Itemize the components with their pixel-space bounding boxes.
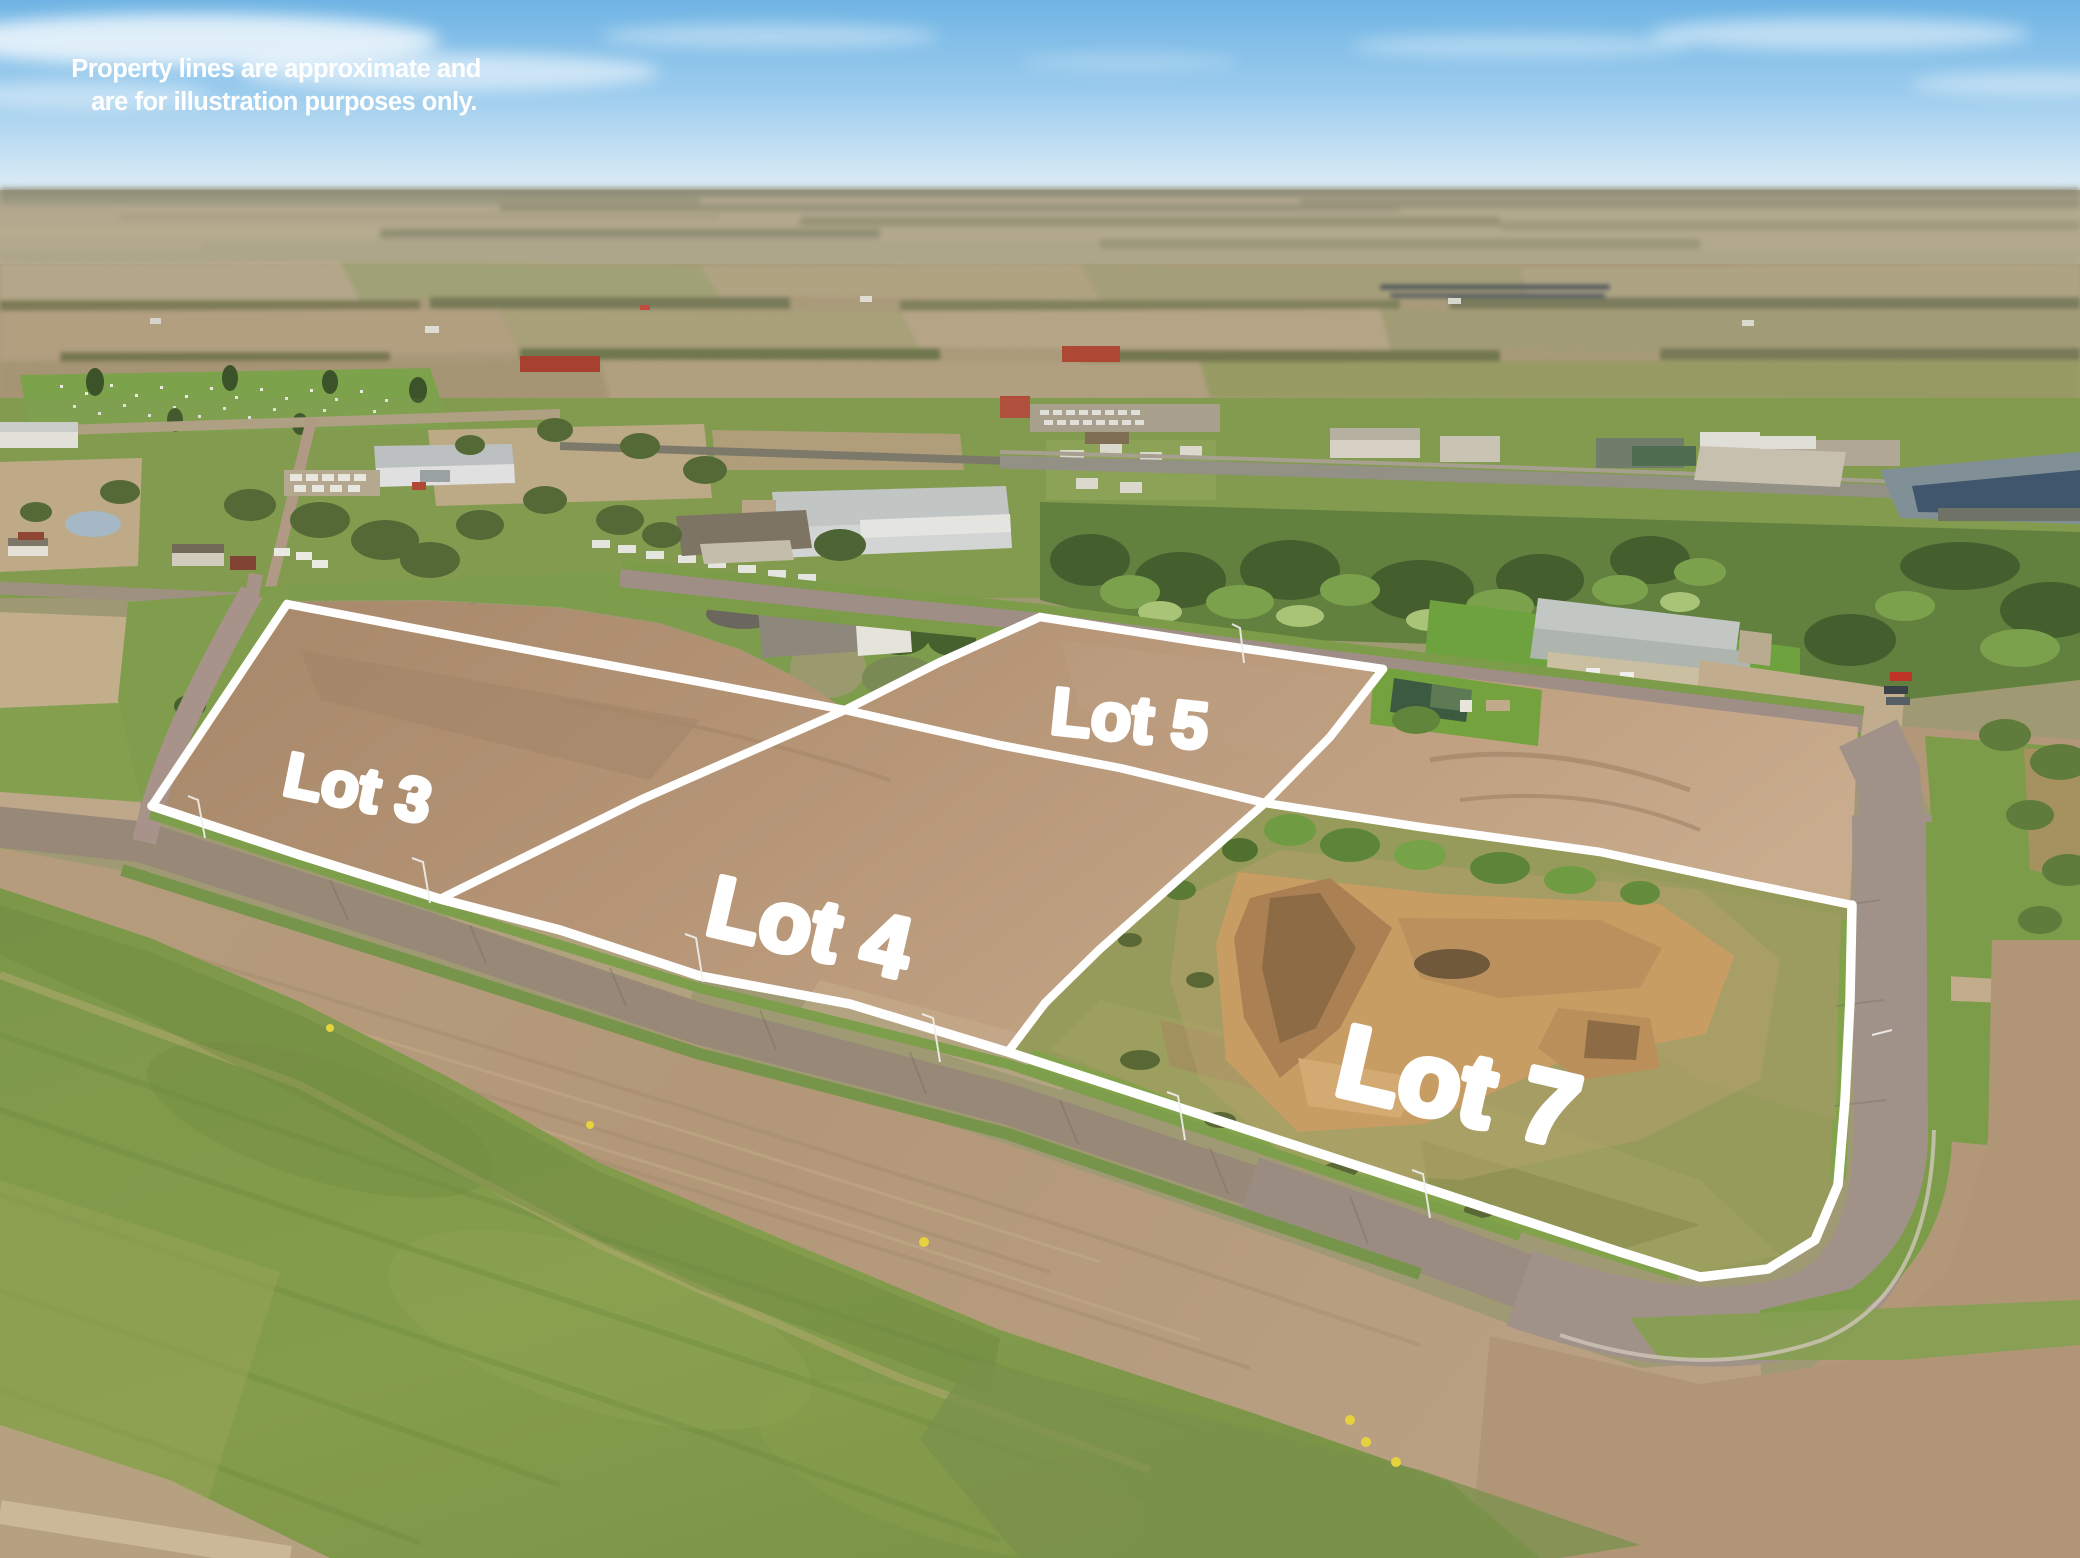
svg-text:are for illustration purposes: are for illustration purposes only. [91, 88, 477, 116]
svg-text:Property lines are approximate: Property lines are approximate and [71, 55, 481, 83]
